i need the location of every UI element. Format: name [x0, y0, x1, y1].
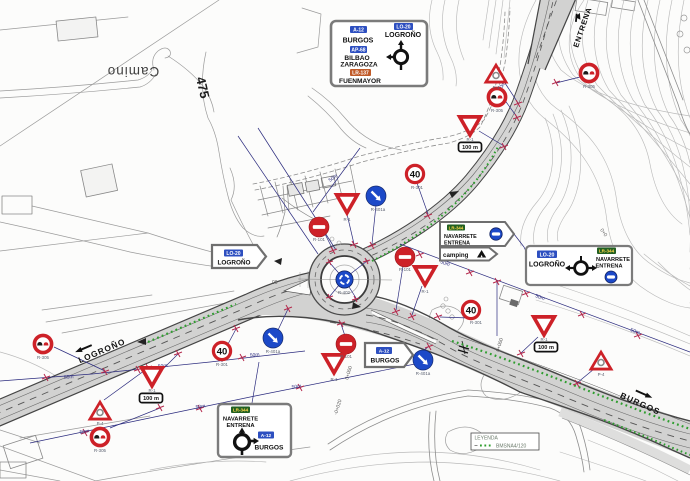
svg-text:R-305: R-305 — [583, 84, 596, 89]
svg-text:ZARAGOZA: ZARAGOZA — [340, 62, 378, 69]
svg-text:ENTRENA: ENTRENA — [444, 240, 470, 246]
svg-text:camping: camping — [443, 252, 469, 259]
svg-text:LO-20: LO-20 — [540, 252, 555, 258]
svg-text:R-1: R-1 — [421, 289, 429, 294]
svg-text:P-4: P-4 — [598, 372, 605, 377]
svg-text:LO-20: LO-20 — [396, 25, 410, 31]
svg-text:LO-20: LO-20 — [226, 251, 240, 257]
svg-text:Camino: Camino — [107, 64, 160, 79]
svg-text:BURGOS: BURGOS — [255, 445, 285, 452]
svg-text:LOGROÑO: LOGROÑO — [217, 258, 250, 267]
svg-text:BURGOS: BURGOS — [343, 38, 374, 45]
svg-text:A-12: A-12 — [261, 433, 272, 439]
svg-text:NAVARRETE: NAVARRETE — [223, 417, 258, 423]
svg-text:A-12: A-12 — [353, 28, 364, 34]
svg-text:BMSNA4/120: BMSNA4/120 — [496, 444, 527, 450]
svg-text:R-1: R-1 — [330, 377, 338, 382]
svg-text:00: 00 — [272, 280, 278, 286]
svg-text:R-301: R-301 — [216, 362, 229, 367]
svg-text:A-12: A-12 — [379, 349, 390, 355]
svg-text:LR-344: LR-344 — [599, 249, 615, 254]
svg-text:R-301: R-301 — [470, 320, 483, 325]
svg-text:R-401a: R-401a — [416, 371, 431, 376]
svg-text:P-4: P-4 — [493, 85, 500, 90]
svg-text:ENTRENA: ENTRENA — [226, 423, 255, 429]
svg-text:BURGOS: BURGOS — [371, 358, 401, 365]
svg-text:AP-68: AP-68 — [351, 48, 365, 54]
svg-text:R-101: R-101 — [340, 354, 353, 359]
svg-text:R-1: R-1 — [343, 217, 351, 222]
svg-text:NAVARRETE: NAVARRETE — [444, 234, 477, 240]
svg-text:FUENMAYOR: FUENMAYOR — [339, 78, 381, 85]
svg-text:R-1: R-1 — [466, 137, 474, 142]
svg-text:50m: 50m — [64, 374, 74, 381]
svg-text:ENTRENA: ENTRENA — [595, 264, 622, 270]
svg-text:R-1: R-1 — [540, 337, 548, 342]
svg-text:R-401a: R-401a — [371, 207, 386, 212]
svg-text:LOGROÑO: LOGROÑO — [385, 30, 422, 39]
svg-text:NAVARRETE: NAVARRETE — [596, 257, 630, 263]
svg-text:LR-137: LR-137 — [352, 71, 369, 77]
svg-text:P-4: P-4 — [97, 421, 104, 426]
svg-text:LR-344: LR-344 — [449, 225, 464, 230]
svg-text:R-305: R-305 — [37, 355, 50, 360]
svg-text:50m: 50m — [250, 352, 260, 359]
svg-text:LR-344: LR-344 — [233, 408, 249, 413]
svg-text:R-1: R-1 — [148, 388, 156, 393]
svg-text:LEYENDA: LEYENDA — [475, 436, 499, 442]
svg-text:R-402: R-402 — [338, 290, 351, 295]
svg-text:R-101: R-101 — [313, 237, 326, 242]
svg-text:R-305: R-305 — [94, 448, 107, 453]
svg-text:R-401a: R-401a — [266, 349, 281, 354]
svg-text:R-301: R-301 — [411, 185, 424, 190]
svg-text:R-101: R-101 — [399, 267, 412, 272]
svg-text:R-305: R-305 — [491, 108, 504, 113]
svg-text:LOGROÑO: LOGROÑO — [529, 260, 566, 269]
